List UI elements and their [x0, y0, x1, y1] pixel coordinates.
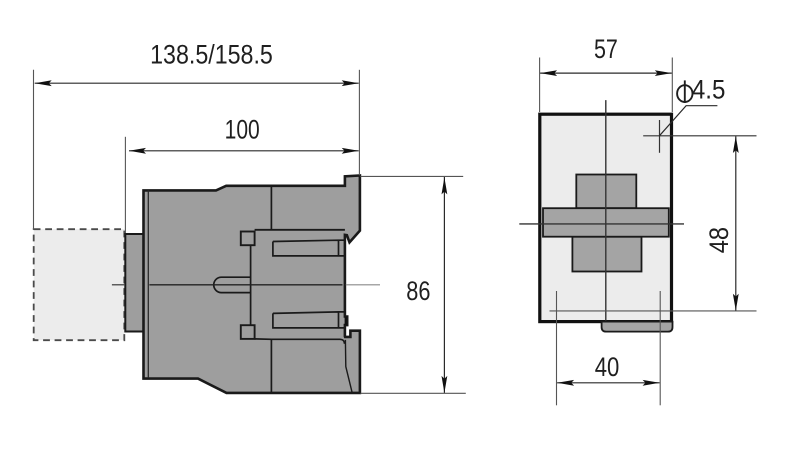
- svg-text:4.5: 4.5: [692, 75, 726, 105]
- svg-text:48: 48: [704, 227, 734, 253]
- svg-text:100: 100: [225, 115, 260, 145]
- svg-text:57: 57: [594, 34, 618, 64]
- svg-text:138.5/158.5: 138.5/158.5: [150, 40, 273, 70]
- svg-text:40: 40: [595, 352, 620, 382]
- svg-text:86: 86: [406, 276, 430, 306]
